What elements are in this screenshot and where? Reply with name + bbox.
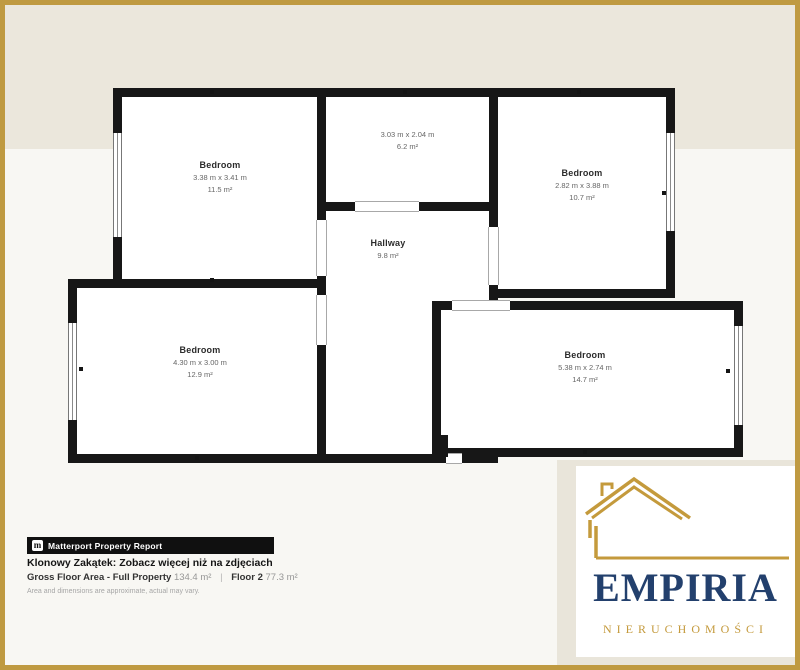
gross-floor-area-label: Gross Floor Area - Full Property <box>27 572 171 583</box>
room-label-bedroom-top-left: Bedroom 3.38 m x 3.41 m 11.5 m² <box>150 160 290 194</box>
report-title: Klonowy Zakątek: Zobacz więcej niż na zd… <box>27 557 273 569</box>
dimension-tick <box>726 369 730 373</box>
room-name: Bedroom <box>130 345 270 355</box>
room-label-top-middle: 3.03 m x 2.04 m 6.2 m² <box>335 127 480 151</box>
gross-floor-area-value: 134.4 m² <box>174 572 212 583</box>
room-dimensions: 3.38 m x 3.41 m <box>150 173 290 182</box>
window-bottom-left <box>68 323 77 420</box>
dimension-tick <box>210 278 214 282</box>
brand-name: EMPIRIA <box>576 564 795 611</box>
door-hallway-right <box>488 227 499 285</box>
dimension-tick <box>662 191 666 195</box>
report-disclaimer: Area and dimensions are approximate, act… <box>27 588 200 595</box>
dimension-tick <box>583 450 587 454</box>
report-stats: Gross Floor Area - Full Property 134.4 m… <box>27 572 298 583</box>
stats-separator: | <box>220 572 222 583</box>
floor-value: 77.3 m² <box>266 572 298 583</box>
property-report-page: Bedroom 3.38 m x 3.41 m 11.5 m² 3.03 m x… <box>0 0 800 670</box>
room-label-hallway: Hallway 9.8 m² <box>328 238 448 260</box>
room-dimensions: 2.82 m x 3.88 m <box>512 181 652 190</box>
room-dimensions: 4.30 m x 3.00 m <box>130 358 270 367</box>
dimension-tick <box>210 90 214 94</box>
door-entry <box>446 453 462 464</box>
floor-label: Floor 2 <box>231 572 263 583</box>
room-area: 11.5 m² <box>150 185 290 194</box>
dimension-tick <box>577 90 581 94</box>
dimension-tick <box>195 456 199 460</box>
door-hallway-left <box>316 220 327 276</box>
room-area: 10.7 m² <box>512 193 652 202</box>
window-top-left <box>113 133 122 237</box>
door-middle-room <box>355 201 419 212</box>
brand-subtitle: NIERUCHOMOŚCI <box>576 622 795 637</box>
badge-label: Matterport Property Report <box>48 541 162 551</box>
room-area: 9.8 m² <box>328 251 448 260</box>
window-bottom-right <box>734 326 743 425</box>
floor-plan: Bedroom 3.38 m x 3.41 m 11.5 m² 3.03 m x… <box>5 5 800 525</box>
room-dimensions: 3.03 m x 2.04 m <box>335 130 480 139</box>
room-name: Bedroom <box>150 160 290 170</box>
room-area: 14.7 m² <box>515 375 655 384</box>
room-name: Bedroom <box>515 350 655 360</box>
door-bedroom-bottom-right <box>452 300 510 311</box>
house-outline-icon <box>576 472 795 564</box>
matterport-m-icon: m <box>32 540 43 551</box>
room-label-bedroom-bottom-right: Bedroom 5.38 m x 2.74 m 14.7 m² <box>515 350 655 384</box>
room-label-bedroom-bottom-left: Bedroom 4.30 m x 3.00 m 12.9 m² <box>130 345 270 379</box>
room-area: 12.9 m² <box>130 370 270 379</box>
room-name: Hallway <box>328 238 448 248</box>
room-label-bedroom-top-right: Bedroom 2.82 m x 3.88 m 10.7 m² <box>512 168 652 202</box>
brand-logo-card: EMPIRIA NIERUCHOMOŚCI <box>576 466 795 657</box>
room-area: 6.2 m² <box>335 142 480 151</box>
dimension-tick <box>79 367 83 371</box>
room-dimensions: 5.38 m x 2.74 m <box>515 363 655 372</box>
window-top-right <box>666 133 675 231</box>
room-name: Bedroom <box>512 168 652 178</box>
dimension-tick <box>403 90 407 94</box>
wall-stub <box>439 435 448 457</box>
matterport-report-badge: m Matterport Property Report <box>27 537 274 554</box>
door-bedroom-bottom-left <box>316 295 327 345</box>
